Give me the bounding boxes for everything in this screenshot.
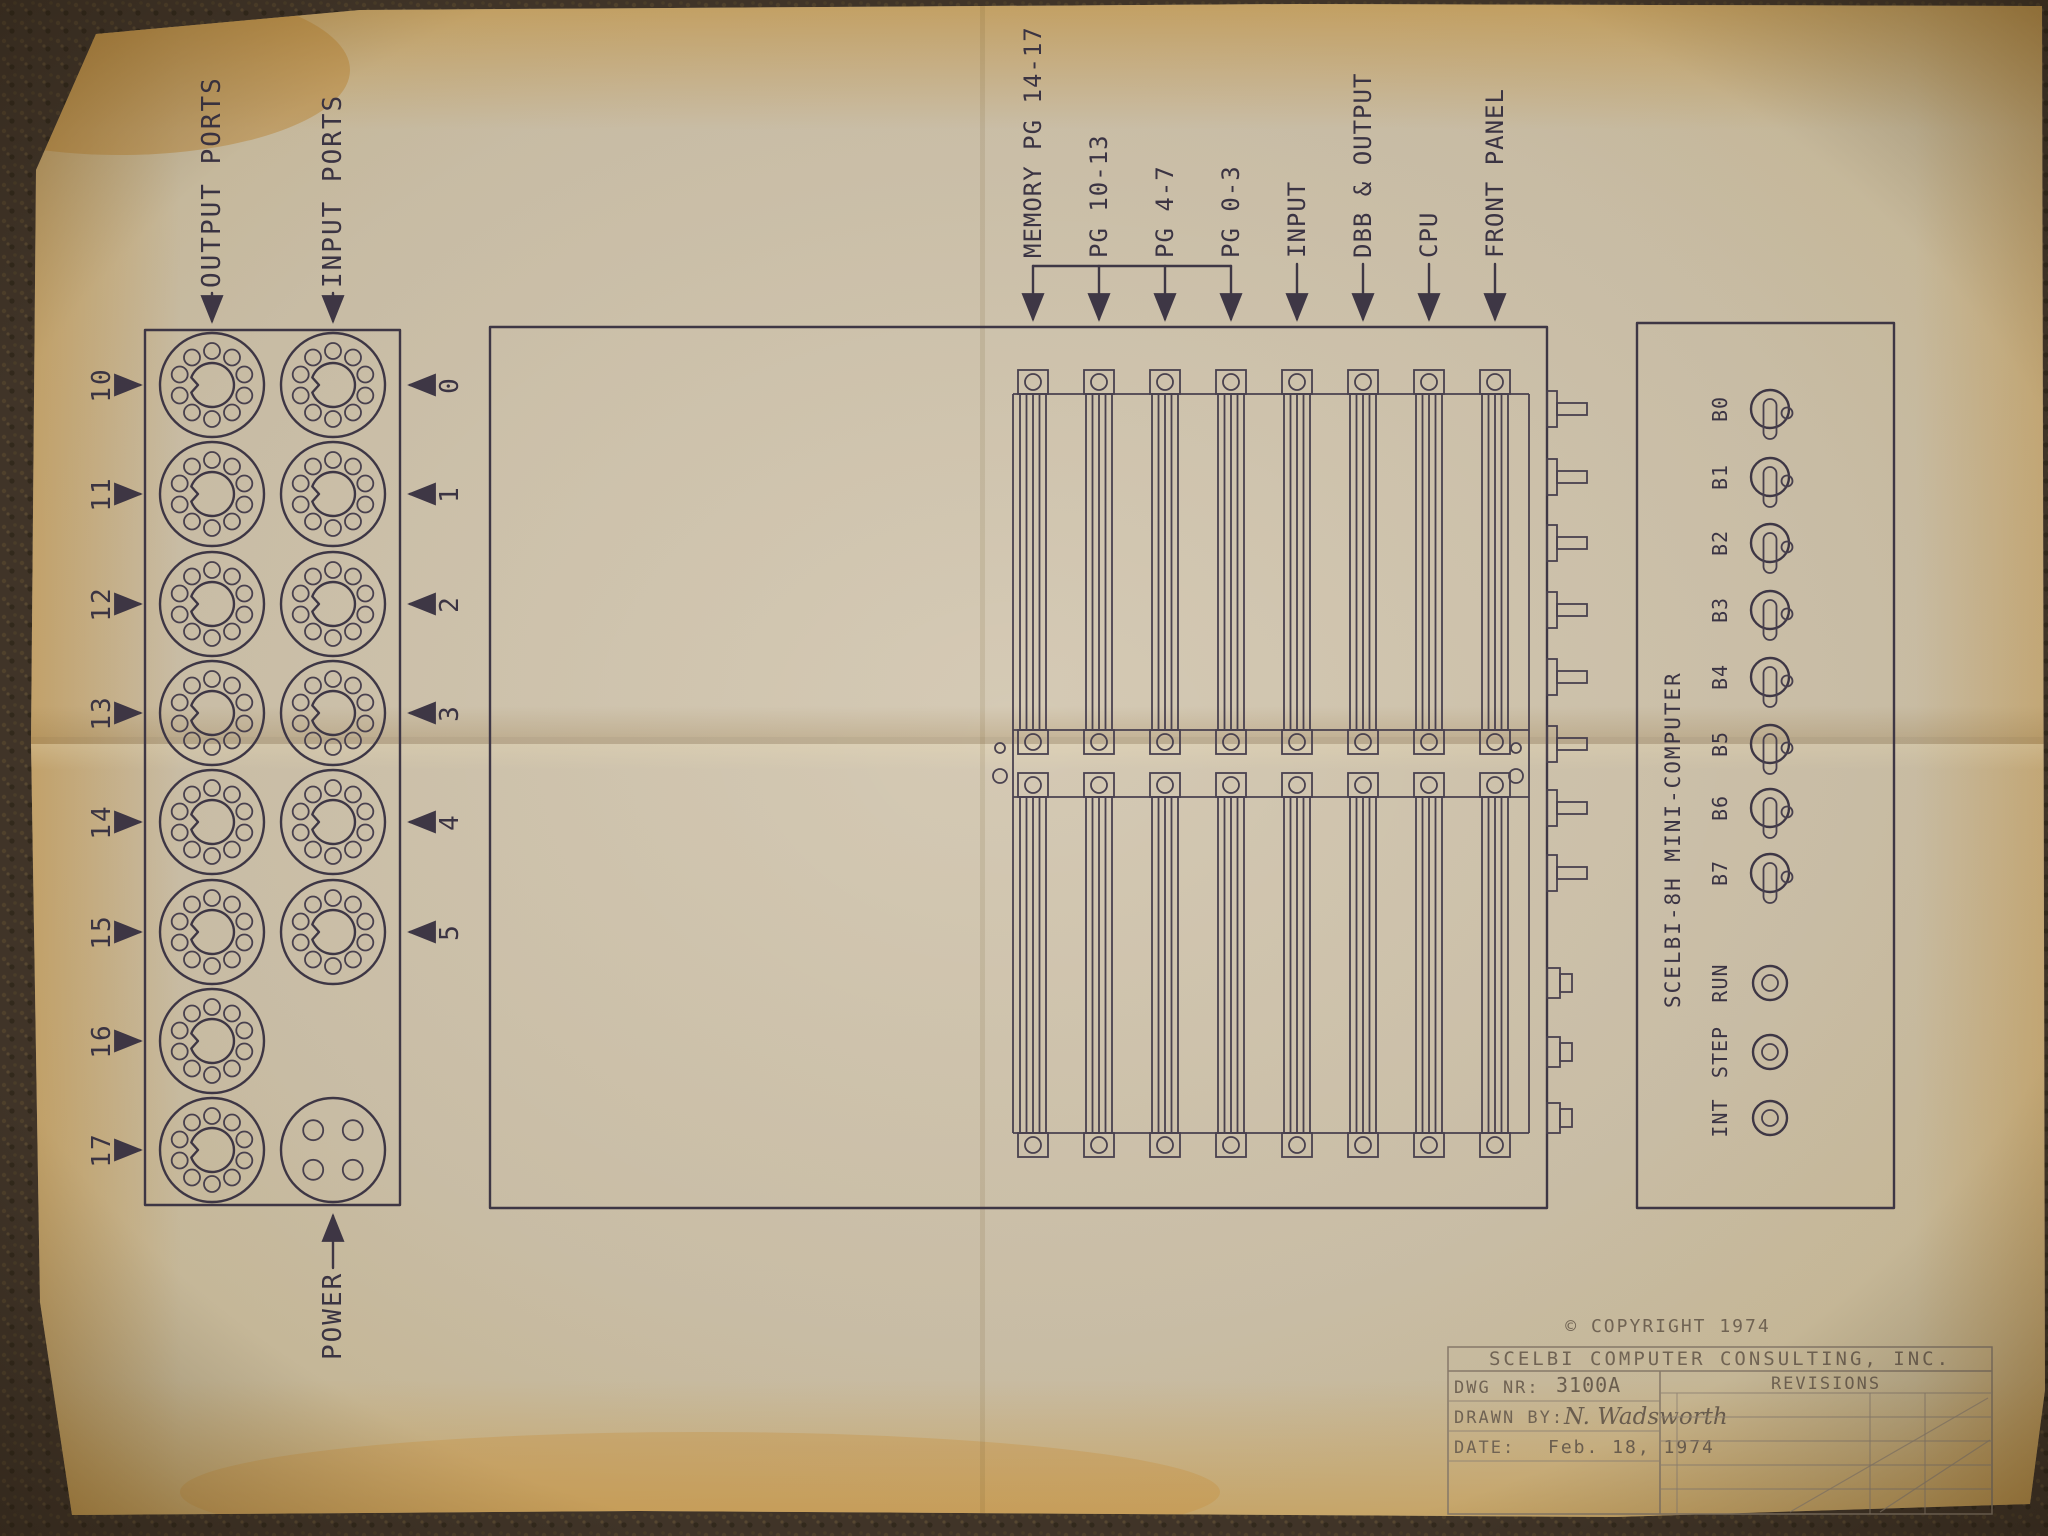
- photographed-blueprint: 10 11 12 13 14 15 16 17 0 1 2 3 4 5: [0, 0, 2048, 1536]
- photo-vignette: [0, 0, 2048, 1536]
